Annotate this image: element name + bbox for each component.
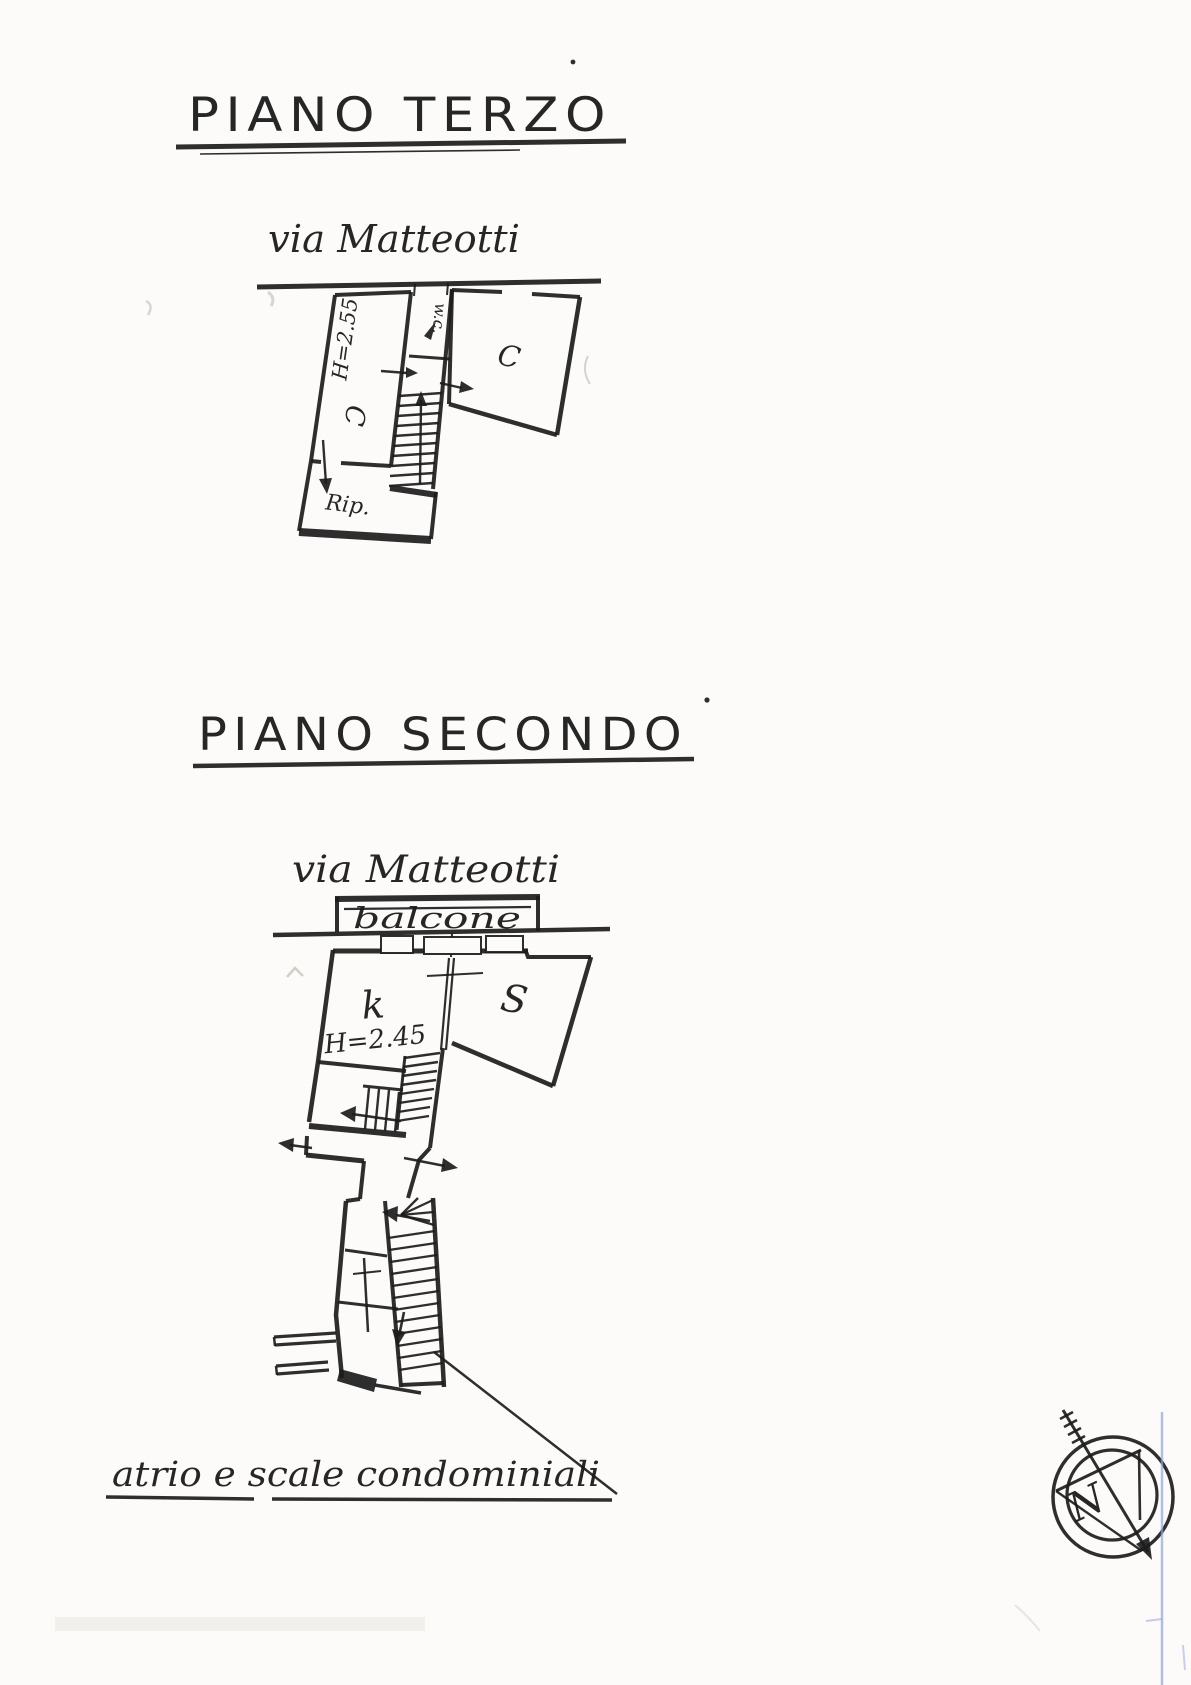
height-note-secondo: H=2.45 — [322, 1020, 428, 1061]
door-arrow — [323, 440, 326, 484]
stairwell-terzo: w.c. — [381, 283, 474, 495]
room-c-right-label: C — [495, 337, 524, 375]
room-s: S — [452, 957, 591, 1086]
room-c-left: H=2.55 C — [311, 292, 411, 466]
street-label-terzo: via Matteotti — [268, 217, 520, 261]
piano-secondo-plan: PIANO SECONDO via Matteotti balcone — [106, 697, 710, 1500]
room-c-left-label: C — [337, 403, 371, 429]
stairs-icon-upper-run — [365, 1088, 399, 1132]
scan-artifact — [585, 356, 590, 384]
compass-chord — [1139, 1450, 1140, 1520]
lower-stair-block — [274, 1198, 444, 1393]
building-edge-bars — [274, 1333, 336, 1375]
caption-group: atrio e scale condominiali — [106, 1352, 617, 1500]
room-k-label: k — [360, 982, 386, 1027]
room-k: k H=2.45 — [309, 950, 483, 1122]
room-c-right: C — [449, 290, 580, 435]
stray-dot — [704, 697, 709, 702]
stair-direction-arrow — [420, 400, 421, 484]
wall-tip — [337, 1369, 377, 1392]
stairwell-secondo — [278, 1048, 458, 1199]
title-underline-echo — [200, 150, 520, 154]
piano-secondo-title: PIANO SECONDO — [198, 708, 688, 761]
floorplan-drawing: PIANO TERZO via Matteotti H=2.55 C w.c. — [0, 0, 1191, 1685]
compass-rose: N — [1053, 1410, 1173, 1560]
facade-wall — [333, 933, 591, 957]
room-s-label: S — [498, 975, 531, 1023]
street-line — [257, 281, 601, 287]
stray-dot — [571, 60, 576, 65]
fixture-mark — [364, 1258, 368, 1332]
stair-direction-arrow — [396, 1215, 430, 1221]
piano-terzo-plan: PIANO TERZO via Matteotti H=2.55 C w.c. — [176, 60, 626, 540]
rip-label: Rip. — [323, 490, 371, 520]
street-label-secondo: via Matteotti — [292, 848, 560, 891]
scan-artifact — [268, 292, 273, 306]
scanned-floorplan-page: PIANO TERZO via Matteotti H=2.55 C w.c. — [0, 0, 1191, 1685]
door-arrow — [404, 1158, 445, 1166]
piano-terzo-title: PIANO TERZO — [188, 88, 612, 143]
window-icon — [381, 936, 523, 954]
caption-atrio: atrio e scale condominiali — [112, 1455, 600, 1495]
street-line — [273, 929, 610, 935]
